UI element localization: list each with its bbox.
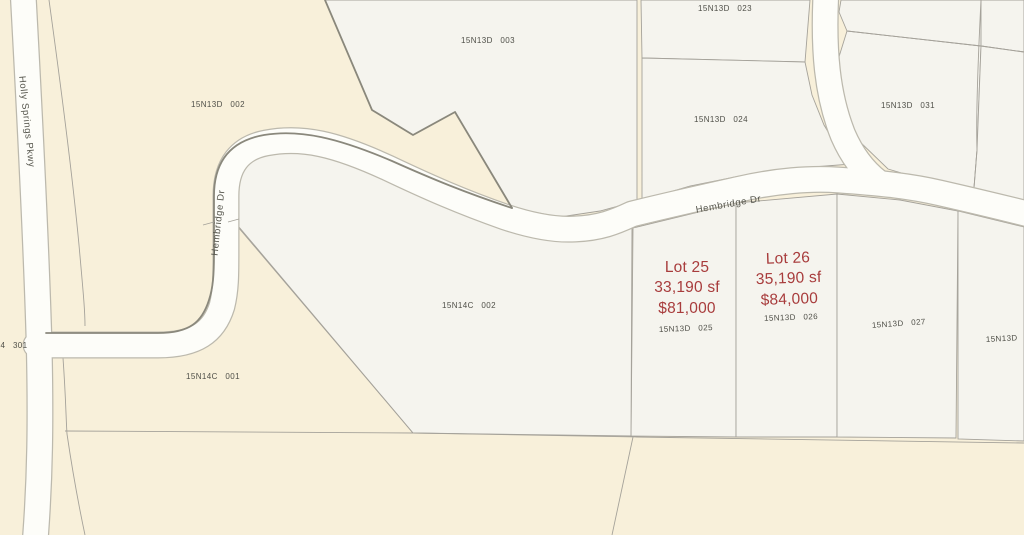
parcel-topright-c[interactable] [974, 46, 1024, 201]
lot25-name: Lot 25 [665, 259, 709, 276]
lot26-name: Lot 26 [766, 249, 811, 268]
label-15n14c-001: 15N14C 001 [186, 372, 240, 381]
label-15n13d-031: 15N13D 031 [881, 101, 935, 110]
parcel-map: 15N13D 002 15N13D 003 15N13D 023 15N13D … [0, 0, 1024, 535]
parcel-topright-b[interactable] [981, 0, 1024, 52]
parcel-lot25[interactable] [631, 203, 736, 437]
label-4301: 4 301 [0, 341, 27, 350]
label-15n14c-002: 15N14C 002 [442, 301, 496, 310]
label-15n13d-002: 15N13D 002 [191, 100, 245, 109]
label-15n13d-003: 15N13D 003 [461, 36, 515, 45]
parcel-right-edge[interactable] [958, 211, 1024, 441]
lot26-area: 35,190 sf [756, 269, 823, 288]
label-right-edge-parcel: 15N13D 0 [986, 333, 1024, 344]
label-15n13d-023: 15N13D 023 [698, 4, 752, 13]
label-15n13d-025: 15N13D 025 [659, 323, 713, 334]
parcel-15n13d-027[interactable] [837, 194, 958, 438]
lot25-area: 33,190 sf [654, 279, 720, 296]
lot25-price: $81,000 [658, 300, 716, 317]
label-15n13d-024: 15N13D 024 [694, 115, 748, 124]
label-15n13d-026: 15N13D 026 [764, 312, 818, 323]
lot26-price: $84,000 [760, 290, 818, 309]
